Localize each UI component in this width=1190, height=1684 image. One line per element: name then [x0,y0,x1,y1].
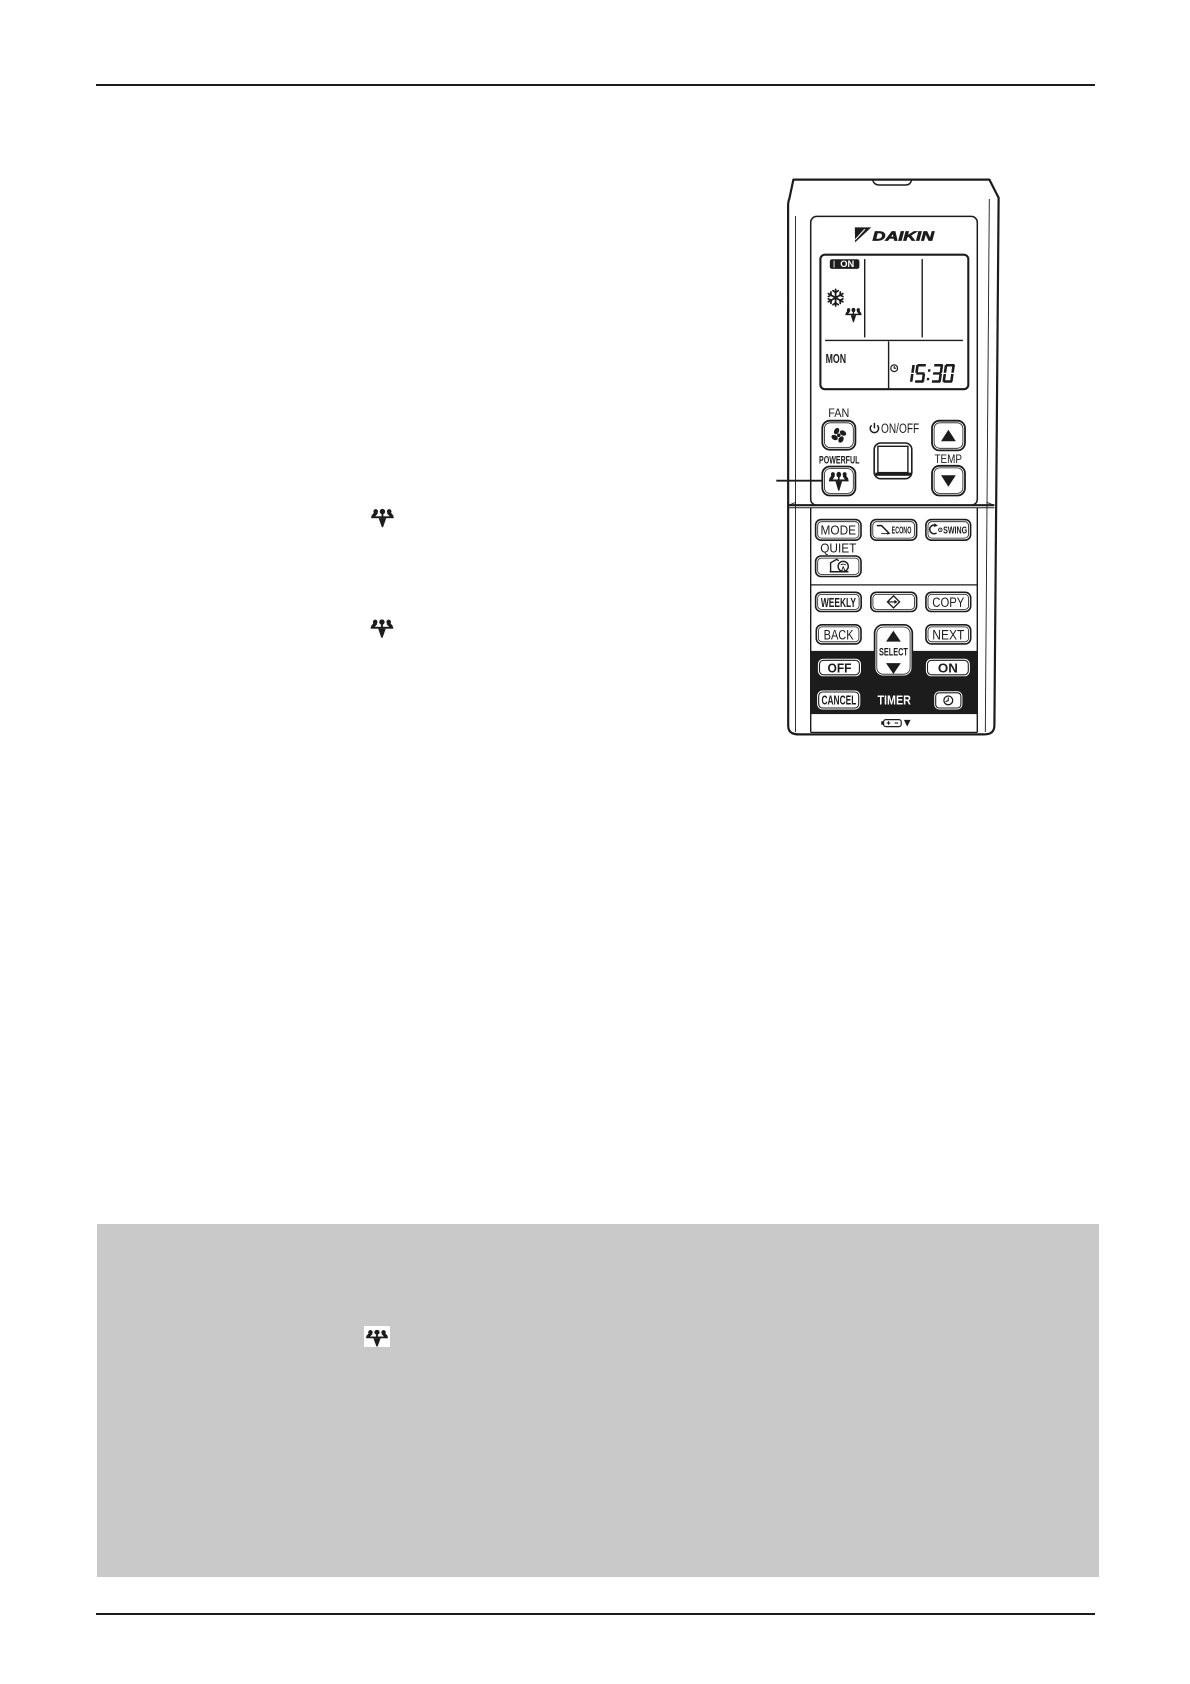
svg-text:POWERFUL: POWERFUL [819,454,860,466]
svg-text:TEMP: TEMP [934,452,962,466]
svg-text:MON: MON [826,351,847,366]
svg-text:COPY: COPY [932,595,964,610]
svg-text:MODE: MODE [821,523,857,538]
svg-text:ON: ON [840,259,854,269]
svg-text:ECONO: ECONO [892,525,912,536]
svg-text:OFF: OFF [828,661,852,676]
svg-text:ON/OFF: ON/OFF [881,421,919,436]
svg-text:NEXT: NEXT [932,628,964,643]
svg-text:CANCEL: CANCEL [822,694,857,708]
svg-text:TIMER: TIMER [878,692,912,707]
svg-text:SELECT: SELECT [879,646,908,658]
svg-text:DAIKIN: DAIKIN [873,228,935,243]
svg-text:SWING: SWING [943,525,967,536]
svg-text:QUIET: QUIET [820,541,856,555]
svg-text:WEEKLY: WEEKLY [821,595,856,610]
svg-text:FAN: FAN [828,406,849,420]
svg-text:BACK: BACK [824,628,854,643]
svg-text:ON: ON [938,661,958,676]
